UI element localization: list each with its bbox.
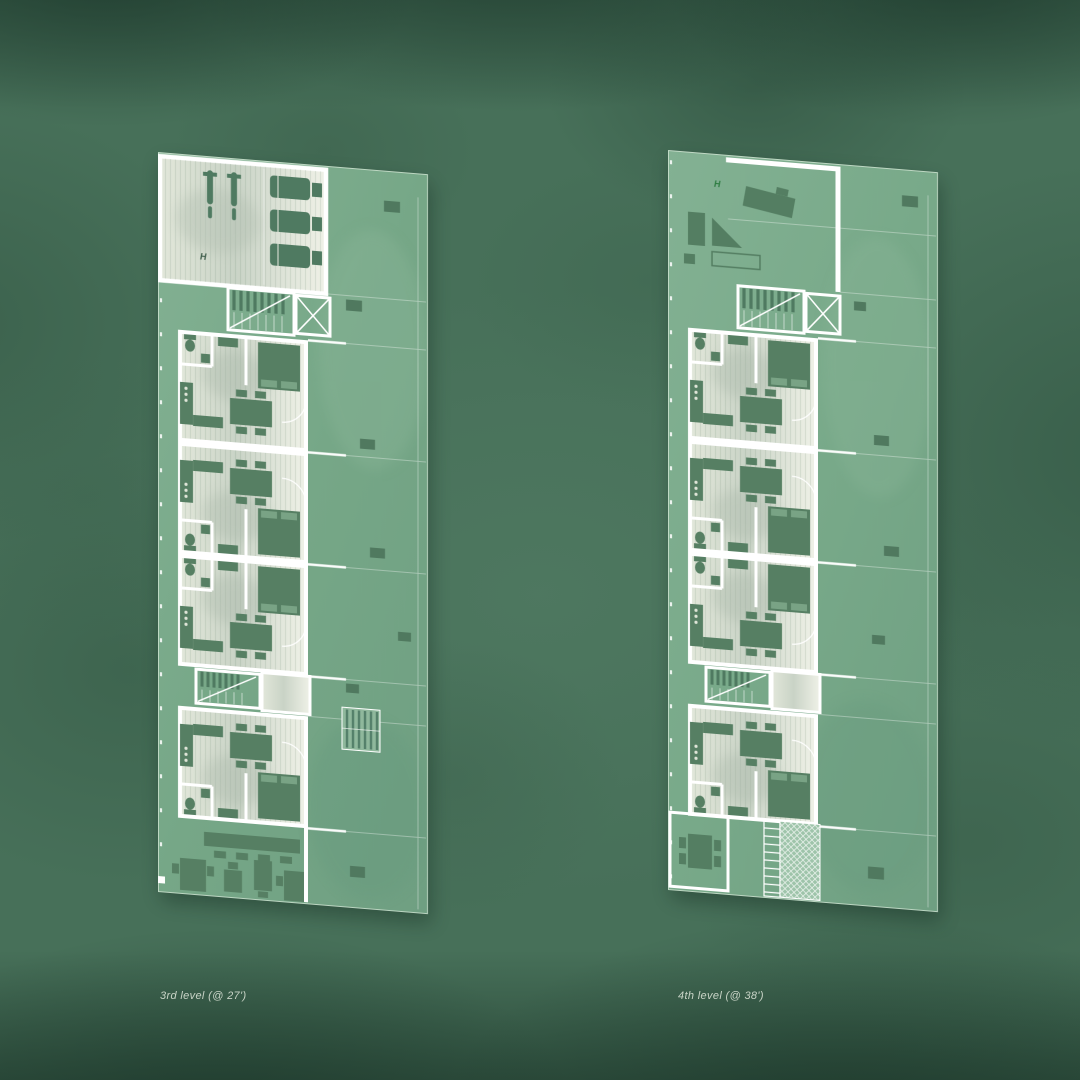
apartment-unit [180, 556, 306, 674]
floor-plan-3rd-level: H [158, 152, 428, 914]
apartment-unit [690, 442, 816, 560]
helipad-marker-level3: H [200, 251, 207, 262]
plan-caption-3rd-level: 3rd level (@ 27') [160, 990, 246, 1002]
apartment-unit [690, 554, 816, 672]
vestibule [772, 671, 820, 713]
apartment-unit [180, 708, 306, 826]
floor-plan-4th-level-drawing: H [668, 150, 938, 912]
planter-icon [868, 866, 884, 879]
helipad-marker-level4: H [714, 179, 721, 190]
apartment-unit [180, 332, 306, 450]
garage-area: H [160, 156, 326, 294]
floor-plan-3rd-level-drawing: H [158, 152, 428, 914]
vestibule [262, 673, 310, 715]
floor-plan-4th-level: H [668, 150, 938, 912]
plan-caption-4th-level: 4th level (@ 38') [678, 990, 764, 1002]
trellis-screen [780, 821, 820, 900]
apartment-unit [690, 706, 816, 824]
apartment-unit [180, 444, 306, 562]
skylight-grid [342, 707, 380, 752]
apartment-unit [690, 330, 816, 448]
lounge-chair-icon [688, 212, 705, 246]
planter-icon [684, 253, 695, 264]
sheet-corner-tick [158, 876, 165, 884]
car-icon [270, 175, 322, 269]
